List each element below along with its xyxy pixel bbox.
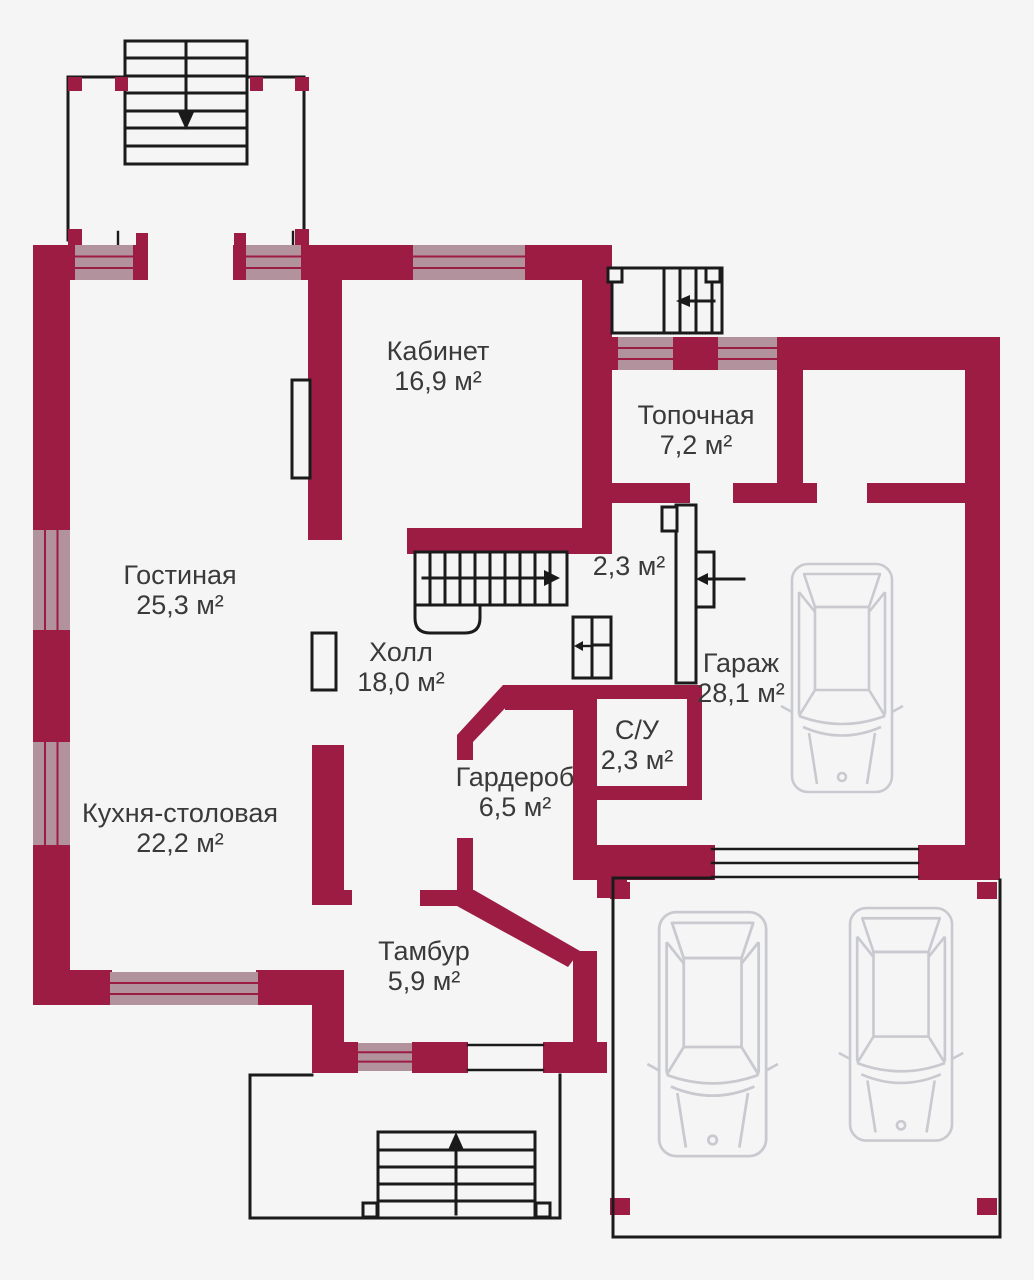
room-area: 2,3 м² [601, 745, 674, 775]
window [358, 1043, 412, 1071]
garage-partition [676, 505, 696, 683]
room-area: 7,2 м² [637, 430, 754, 460]
vent-shaft-icon [312, 633, 336, 690]
room-name: С/У [601, 715, 674, 745]
room-label-boiler: Топочная 7,2 м² [637, 400, 754, 460]
room-name: Топочная [637, 400, 754, 430]
window [718, 337, 777, 370]
window [33, 530, 70, 630]
interior-stairs-icon [415, 552, 567, 633]
door-frame-icon [662, 507, 677, 531]
floor-plan-svg [0, 0, 1034, 1280]
room-label-closet: 2,3 м² [593, 551, 666, 581]
room-area: 16,9 м² [387, 366, 490, 396]
entry-porch [250, 1075, 560, 1218]
room-name: Холл [357, 637, 445, 667]
closet-door-icon [573, 617, 611, 678]
room-label-garage: Гараж 28,1 м² [697, 648, 785, 708]
window [75, 245, 133, 280]
room-area: 25,3 м² [123, 590, 236, 620]
room-name: Гостиная [123, 560, 236, 590]
room-label-wc: С/У 2,3 м² [601, 715, 674, 775]
room-area: 28,1 м² [697, 678, 785, 708]
terrace [68, 41, 304, 245]
room-area: 2,3 м² [593, 551, 666, 581]
room-label-hall: Холл 18,0 м² [357, 637, 445, 697]
room-label-vestibule: Тамбур 5,9 м² [378, 936, 470, 996]
room-area: 5,9 м² [378, 966, 470, 996]
room-label-wardrobe: Гардероб 6,5 м² [456, 762, 575, 822]
room-label-kitchen: Кухня-столовая 22,2 м² [82, 798, 278, 858]
window [413, 245, 525, 280]
carport [613, 849, 1000, 1237]
room-area: 22,2 м² [82, 828, 278, 858]
room-name: Кухня-столовая [82, 798, 278, 828]
radiator-icon [292, 380, 310, 478]
room-name: Тамбур [378, 936, 470, 966]
window [110, 972, 258, 1005]
room-name: Гараж [697, 648, 785, 678]
room-name: Кабинет [387, 336, 490, 366]
floor-plan: Кабинет 16,9 м² Топочная 7,2 м² Гостиная… [0, 0, 1034, 1280]
back-porch [608, 268, 722, 333]
room-label-study: Кабинет 16,9 м² [387, 336, 490, 396]
room-name: Гардероб [456, 762, 575, 792]
room-area: 18,0 м² [357, 667, 445, 697]
window [618, 337, 673, 370]
front-door-threshold [468, 1045, 543, 1070]
room-label-living: Гостиная 25,3 м² [123, 560, 236, 620]
garage-gate-icon [712, 849, 918, 877]
room-area: 6,5 м² [456, 792, 575, 822]
window [33, 742, 70, 845]
window [246, 245, 301, 280]
